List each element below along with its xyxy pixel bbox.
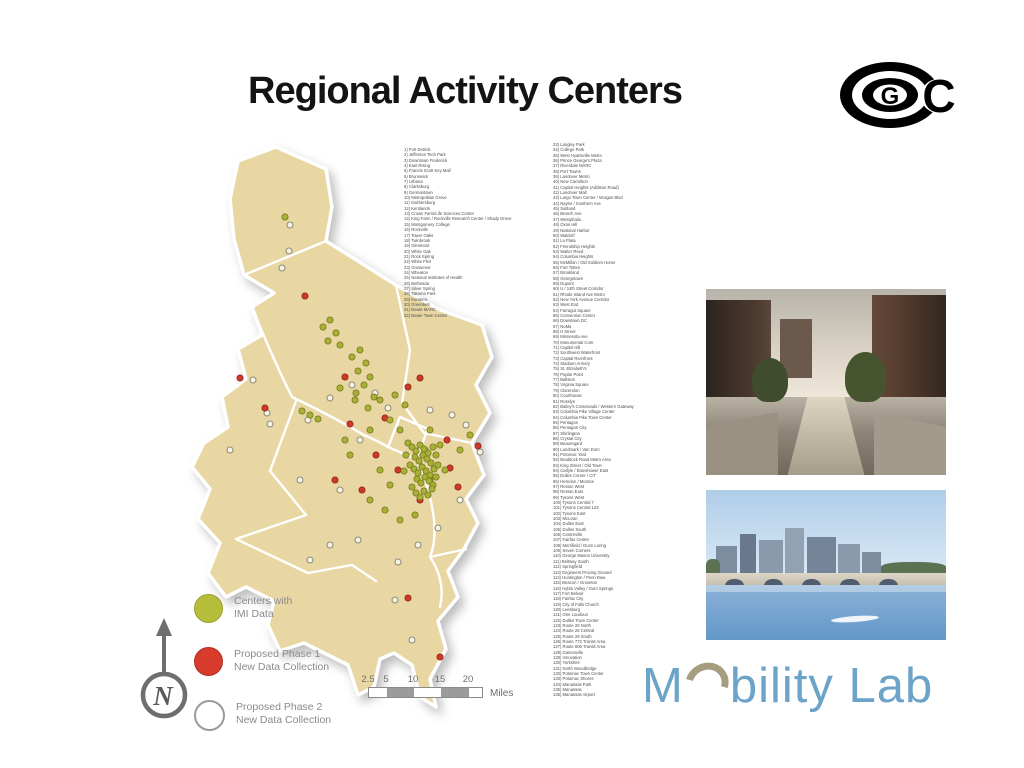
- map-dot-imi: [387, 482, 393, 488]
- map-dot-phase2: [409, 637, 415, 643]
- centers-list-column-2: 33) Langley Park34) College Park35) West…: [553, 142, 634, 698]
- map-dot-phase2: [457, 497, 463, 503]
- map-dot-phase1: [417, 375, 423, 381]
- map-dot-phase2: [227, 447, 233, 453]
- compass-north-icon: N: [132, 616, 196, 722]
- map-dot-phase2: [357, 437, 363, 443]
- map-dot-imi: [367, 374, 373, 380]
- map-dot-phase1: [342, 374, 348, 380]
- map-legend: Centers with IMI Data Proposed Phase 1 N…: [194, 594, 364, 755]
- photo-river-bridge-skyline: [706, 490, 946, 640]
- scale-bar-segment: [469, 688, 482, 697]
- map-dot-imi: [402, 402, 408, 408]
- map-dot-imi: [401, 468, 407, 474]
- map-dot-imi: [430, 444, 436, 450]
- cog-letter-g: G: [881, 83, 900, 110]
- svg-text:N: N: [152, 681, 174, 711]
- cog-logo: G C: [838, 56, 956, 134]
- map-dot-phase2: [427, 407, 433, 413]
- map-dot-phase1: [395, 467, 401, 473]
- map-dot-phase2: [297, 477, 303, 483]
- map-dot-phase2: [477, 449, 483, 455]
- map-dot-imi: [435, 462, 441, 468]
- map-dot-phase1: [475, 443, 481, 449]
- map-dot-imi: [433, 474, 439, 480]
- map-dot-phase1: [347, 421, 353, 427]
- swoosh-o-icon: [678, 655, 737, 713]
- map-dot-phase1: [302, 293, 308, 299]
- map-dot-phase1: [405, 595, 411, 601]
- mobility-lab-m: M: [642, 659, 684, 713]
- map-dot-imi: [315, 416, 321, 422]
- map-dot-imi: [467, 432, 473, 438]
- map-dot-imi: [427, 427, 433, 433]
- map-dot-imi: [377, 397, 383, 403]
- map-dot-imi: [349, 354, 355, 360]
- mobility-lab-rest: bility Lab: [730, 659, 933, 713]
- scale-bar-segments: [368, 687, 483, 698]
- photo1-tree: [845, 352, 886, 402]
- map-dot-phase2: [449, 412, 455, 418]
- map-dot-phase1: [262, 405, 268, 411]
- map-dot-imi: [412, 512, 418, 518]
- map-dot-phase2: [415, 542, 421, 548]
- scale-bar-segment: [441, 688, 469, 697]
- phase2-circle-icon: [194, 700, 225, 731]
- legend-item-phase1: Proposed Phase 1 New Data Collection: [194, 647, 364, 676]
- scale-bar-segment: [369, 688, 387, 697]
- map-dot-imi: [320, 324, 326, 330]
- map-dot-phase2: [267, 421, 273, 427]
- map-dot-phase2: [279, 265, 285, 271]
- map-dot-imi: [413, 490, 419, 496]
- map-dot-phase1: [359, 487, 365, 493]
- map-dot-imi: [325, 338, 331, 344]
- legend-label: Proposed Phase 1 New Data Collection: [234, 647, 329, 674]
- scale-bar-segment: [387, 688, 414, 697]
- slide: Regional Activity Centers G C 1) Fort De…: [0, 0, 1024, 768]
- map-dot-imi: [415, 470, 421, 476]
- map-dot-phase2: [392, 597, 398, 603]
- map-dot-imi: [337, 342, 343, 348]
- photo2-water-glint: [706, 585, 946, 593]
- map-dot-imi: [403, 452, 409, 458]
- map-dot-imi: [352, 397, 358, 403]
- map-dot-phase2: [250, 377, 256, 383]
- map-dot-imi: [367, 497, 373, 503]
- legend-label: Proposed Phase 2 New Data Collection: [236, 700, 331, 727]
- map-dot-phase2: [327, 395, 333, 401]
- scale-tick-label: 2.5: [361, 674, 374, 685]
- map-dot-imi: [363, 360, 369, 366]
- map-dot-imi: [355, 368, 361, 374]
- map-dot-imi: [442, 467, 448, 473]
- legend-item-imi: Centers with IMI Data: [194, 594, 364, 623]
- phase1-circle-icon: [194, 647, 223, 676]
- map-dot-imi: [299, 408, 305, 414]
- map-scale-bar: 2.55101520 Miles: [368, 674, 528, 702]
- scale-bar-segment: [414, 688, 441, 697]
- map-dot-phase2: [355, 537, 361, 543]
- map-dot-imi: [307, 412, 313, 418]
- map-dot-imi: [416, 458, 422, 464]
- map-dot-imi: [457, 447, 463, 453]
- map-dot-imi: [433, 452, 439, 458]
- map-dot-imi: [342, 437, 348, 443]
- map-dot-phase1: [437, 654, 443, 660]
- photo2-building: [759, 540, 783, 573]
- map-dot-phase2: [286, 248, 292, 254]
- map-dot-imi: [382, 507, 388, 513]
- scale-tick-label: 5: [383, 674, 388, 685]
- map-dot-imi: [337, 385, 343, 391]
- map-dot-phase2: [307, 557, 313, 563]
- legend-label: Centers with IMI Data: [234, 594, 292, 621]
- map-dot-imi: [397, 517, 403, 523]
- page-title: Regional Activity Centers: [185, 70, 745, 113]
- map-dot-imi: [392, 392, 398, 398]
- scale-unit-label: Miles: [490, 688, 513, 699]
- map-dot-imi: [377, 467, 383, 473]
- map-dot-imi: [413, 448, 419, 454]
- photo-canal-street-scene: [706, 289, 946, 475]
- center-list-item: 32) Bowie Town Center: [404, 313, 512, 318]
- map-dot-imi: [371, 394, 377, 400]
- scale-tick-label: 15: [435, 674, 446, 685]
- mobility-lab-logo: Mbility Lab: [642, 658, 952, 722]
- map-dot-imi: [353, 390, 359, 396]
- map-dot-phase2: [287, 222, 293, 228]
- map-dot-imi: [397, 427, 403, 433]
- map-dot-imi: [409, 484, 415, 490]
- photo2-building: [807, 537, 836, 573]
- map-dot-imi: [327, 317, 333, 323]
- map-dot-phase1: [373, 452, 379, 458]
- scale-tick-label: 20: [463, 674, 474, 685]
- map-dot-imi: [282, 214, 288, 220]
- cog-letter-c: C: [922, 70, 955, 122]
- map-dot-phase2: [395, 559, 401, 565]
- map-dot-phase2: [327, 542, 333, 548]
- map-dot-phase1: [455, 484, 461, 490]
- imi-circle-icon: [194, 594, 223, 623]
- photo2-building: [838, 544, 860, 573]
- map-dot-phase2: [349, 382, 355, 388]
- center-list-item: 43) Largo Town Center / Morgan Blvd: [553, 195, 634, 200]
- map-dot-phase2: [463, 422, 469, 428]
- map-dot-imi: [347, 452, 353, 458]
- map-dot-phase1: [405, 384, 411, 390]
- map-dot-imi: [365, 405, 371, 411]
- map-dot-imi: [428, 460, 434, 466]
- photo1-tree: [752, 358, 788, 403]
- map-dot-imi: [425, 492, 431, 498]
- map-dot-phase2: [385, 405, 391, 411]
- centers-list-column-1: 1) Fort Detrick2) Jefferson Tech Park3) …: [404, 147, 512, 318]
- map-dot-imi: [437, 442, 443, 448]
- map-dot-phase1: [237, 375, 243, 381]
- photo2-building: [740, 534, 757, 573]
- scale-tick-label: 10: [408, 674, 419, 685]
- map-dot-imi: [333, 330, 339, 336]
- map-dot-phase2: [435, 525, 441, 531]
- map-dot-phase1: [332, 477, 338, 483]
- center-list-item: 136) Manassas Airport: [553, 692, 634, 697]
- scale-tick-labels: 2.55101520: [368, 674, 528, 686]
- photo2-river-water: [706, 585, 946, 641]
- legend-item-phase2: Proposed Phase 2 New Data Collection: [194, 700, 364, 731]
- photo2-building: [785, 528, 804, 573]
- map-dot-phase1: [444, 437, 450, 443]
- map-dot-imi: [361, 382, 367, 388]
- map-dot-imi: [367, 427, 373, 433]
- map-dot-imi: [357, 347, 363, 353]
- map-dot-imi: [387, 417, 393, 423]
- map-dot-imi: [418, 480, 424, 486]
- photo2-building: [862, 552, 881, 573]
- map-dot-imi: [429, 486, 435, 492]
- map-dot-phase2: [337, 487, 343, 493]
